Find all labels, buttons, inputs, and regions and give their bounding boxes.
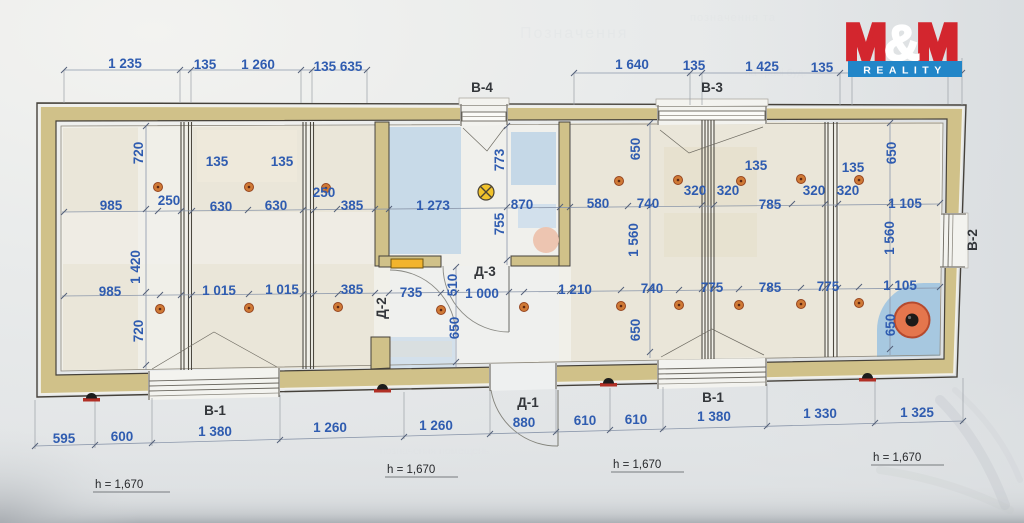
svg-text:650: 650 (628, 138, 643, 161)
svg-text:595: 595 (53, 431, 76, 446)
svg-text:785: 785 (759, 280, 782, 295)
svg-text:Позначення: Позначення (520, 25, 629, 42)
svg-text:720: 720 (131, 142, 146, 165)
svg-text:773: 773 (492, 148, 507, 171)
svg-text:В-2: В-2 (965, 229, 980, 251)
svg-text:135: 135 (683, 58, 706, 73)
svg-text:1 560: 1 560 (626, 223, 641, 257)
svg-text:630: 630 (210, 199, 233, 214)
svg-text:1 420: 1 420 (128, 250, 143, 284)
svg-text:1 425: 1 425 (745, 59, 779, 74)
svg-text:1 105: 1 105 (888, 196, 922, 211)
svg-text:385: 385 (341, 198, 364, 213)
svg-text:1 330: 1 330 (803, 406, 837, 421)
svg-text:позначення та: позначення та (690, 12, 776, 24)
svg-text:610: 610 (625, 412, 648, 427)
svg-text:880: 880 (513, 415, 536, 430)
svg-text:h = 1,670: h = 1,670 (873, 452, 921, 464)
svg-text:1 000: 1 000 (465, 286, 499, 301)
svg-text:h = 1,670: h = 1,670 (387, 464, 435, 476)
svg-text:755: 755 (492, 212, 507, 235)
svg-text:135: 135 (271, 154, 294, 169)
svg-text:h = 1,670: h = 1,670 (95, 479, 143, 491)
svg-text:320: 320 (837, 183, 860, 198)
svg-text:740: 740 (637, 196, 660, 211)
svg-text:1 015: 1 015 (265, 282, 299, 297)
svg-text:Д-2: Д-2 (374, 297, 389, 319)
svg-text:Д-1: Д-1 (517, 395, 539, 410)
svg-text:1 260: 1 260 (419, 418, 453, 433)
svg-text:135: 135 (811, 60, 834, 75)
svg-text:320: 320 (717, 183, 740, 198)
svg-text:1 105: 1 105 (883, 278, 917, 293)
svg-text:135 635: 135 635 (314, 59, 363, 74)
svg-text:h = 1,670: h = 1,670 (613, 459, 661, 471)
svg-text:580: 580 (587, 196, 610, 211)
svg-text:775: 775 (817, 279, 840, 294)
svg-text:785: 785 (759, 197, 782, 212)
svg-text:320: 320 (803, 183, 826, 198)
svg-text:В-3: В-3 (701, 80, 723, 95)
svg-text:1 260: 1 260 (313, 420, 347, 435)
svg-text:1 380: 1 380 (697, 409, 731, 424)
svg-text:630: 630 (265, 198, 288, 213)
svg-text:600: 600 (111, 429, 134, 444)
svg-text:735: 735 (400, 285, 423, 300)
svg-text:510: 510 (445, 274, 460, 297)
svg-text:Д-3: Д-3 (474, 264, 496, 279)
svg-text:В-1: В-1 (204, 403, 226, 418)
svg-text:610: 610 (574, 413, 597, 428)
svg-text:775: 775 (701, 280, 724, 295)
svg-text:1 235: 1 235 (108, 56, 142, 71)
svg-text:320: 320 (684, 183, 707, 198)
svg-text:В-1: В-1 (702, 390, 724, 405)
svg-text:650: 650 (447, 317, 462, 340)
svg-text:985: 985 (100, 198, 123, 213)
svg-text:250: 250 (158, 193, 181, 208)
svg-text:1 260: 1 260 (241, 57, 275, 72)
svg-text:1 380: 1 380 (198, 424, 232, 439)
svg-text:385: 385 (341, 282, 364, 297)
svg-text:1 210: 1 210 (558, 282, 592, 297)
svg-text:870: 870 (511, 197, 534, 212)
svg-text:135: 135 (842, 160, 865, 175)
svg-text:985: 985 (99, 284, 122, 299)
svg-text:250: 250 (313, 185, 336, 200)
svg-text:135: 135 (206, 154, 229, 169)
svg-text:135: 135 (194, 57, 217, 72)
svg-text:1 015: 1 015 (202, 283, 236, 298)
svg-text:1 640: 1 640 (615, 57, 649, 72)
svg-text:1 273: 1 273 (416, 198, 450, 213)
svg-text:135: 135 (745, 158, 768, 173)
svg-text:В-4: В-4 (471, 80, 493, 95)
svg-text:позначення помещень: позначення помещень (380, 445, 490, 457)
svg-text:1 325: 1 325 (900, 405, 934, 420)
svg-text:1 560: 1 560 (882, 221, 897, 255)
svg-text:650: 650 (883, 314, 898, 337)
svg-text:740: 740 (641, 281, 664, 296)
svg-text:650: 650 (628, 319, 643, 342)
svg-text:650: 650 (884, 142, 899, 165)
svg-text:REALITY: REALITY (863, 65, 946, 77)
svg-text:720: 720 (131, 320, 146, 343)
